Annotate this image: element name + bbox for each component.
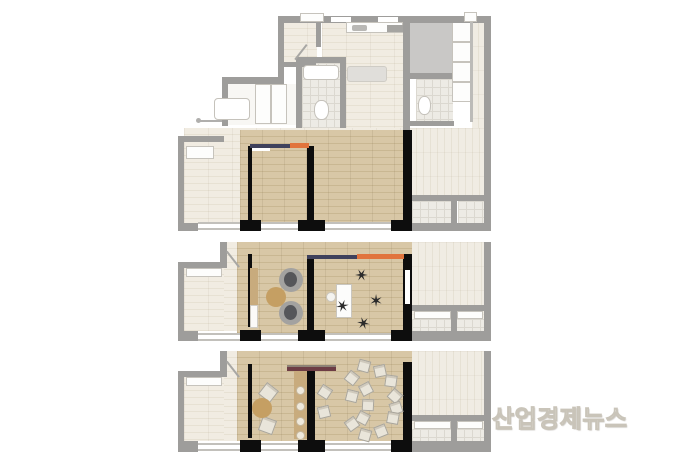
chair-icon: [345, 389, 360, 404]
chair-icon: [386, 411, 400, 425]
lounge-chair-seat: [284, 305, 297, 320]
stool-icon: [296, 417, 305, 426]
chair-icon: [358, 381, 374, 397]
chair-icon: [358, 428, 373, 443]
floor-plan-canvas: ✶✶✶✶ 산업경제뉴스: [0, 0, 680, 471]
chair-icon: [384, 374, 398, 388]
chair-icon: [317, 405, 332, 420]
office-chair-icon: ✶: [351, 310, 374, 333]
stool-icon: [296, 402, 305, 411]
chair-icon: [317, 384, 334, 401]
lounge-chair-seat: [284, 272, 297, 287]
stool-icon: [296, 431, 305, 440]
office-chair-icon: ✶: [350, 264, 375, 289]
stool-icon: [296, 386, 305, 395]
watermark: 산업경제뉴스: [492, 399, 662, 429]
chair-icon: [362, 399, 375, 412]
chair-icon: [258, 416, 277, 435]
lounge-chair-icon: [279, 268, 303, 292]
chair-icon: [373, 423, 389, 439]
round-table-icon: [252, 398, 272, 418]
chair-icon: [344, 370, 361, 387]
chair-icon: [357, 359, 372, 374]
office-chair-icon: ✶: [363, 289, 388, 314]
round-table-icon: [266, 287, 286, 307]
lounge-chair-icon: [279, 301, 303, 325]
